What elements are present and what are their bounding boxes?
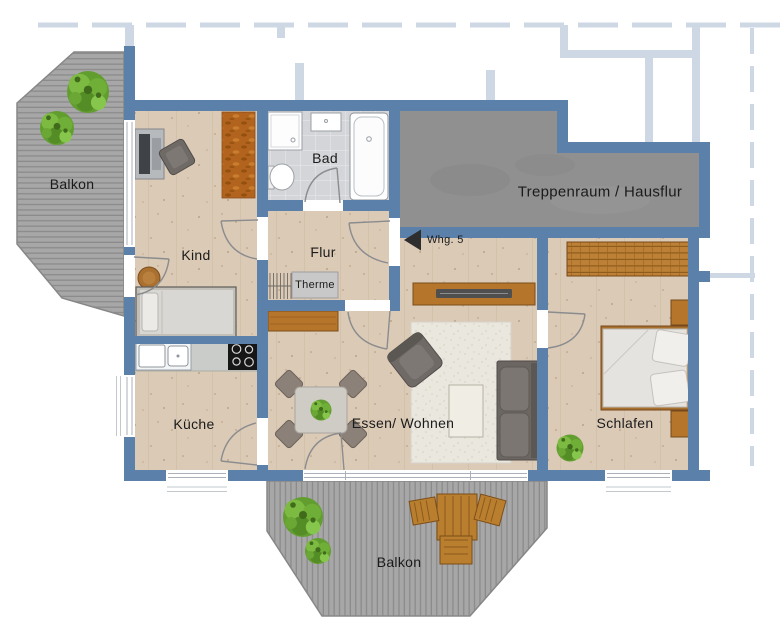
wardrobe [567, 242, 697, 276]
toilet [268, 164, 294, 190]
entry-door-opening [389, 218, 400, 266]
tv-lowboard [413, 283, 535, 305]
plant [557, 435, 584, 462]
cooktop [228, 341, 257, 370]
door-opening [257, 418, 268, 465]
floor-plan-drawing [0, 0, 781, 637]
bathtub [350, 113, 388, 200]
patio-table [437, 494, 477, 540]
single-bed [136, 287, 236, 337]
kind-rug [222, 112, 255, 198]
shower [268, 112, 302, 150]
furniture-kueche [135, 341, 257, 371]
double-bed [601, 326, 697, 410]
window [605, 470, 672, 481]
window [166, 470, 228, 481]
sofa [497, 361, 540, 460]
window [124, 120, 135, 247]
plant [311, 400, 332, 421]
plant [40, 111, 74, 145]
bath-sink [311, 113, 341, 131]
window [124, 375, 135, 437]
sideboard [268, 311, 338, 331]
door-opening [345, 300, 390, 311]
floor-plan: Balkon Kind Bad Flur Treppenraum / Hausf… [0, 0, 781, 637]
door-opening [257, 217, 268, 260]
plant [305, 538, 331, 564]
window [303, 470, 528, 481]
plant [283, 497, 323, 537]
therme-box [292, 272, 338, 298]
kitchen-sink [136, 342, 191, 370]
door-opening [537, 310, 548, 348]
door-opening [303, 200, 343, 211]
balcony-door-opening [124, 255, 135, 297]
coffee-table [449, 385, 483, 437]
patio-chair [409, 497, 439, 525]
plant [67, 71, 109, 113]
patio-chair [440, 536, 472, 564]
